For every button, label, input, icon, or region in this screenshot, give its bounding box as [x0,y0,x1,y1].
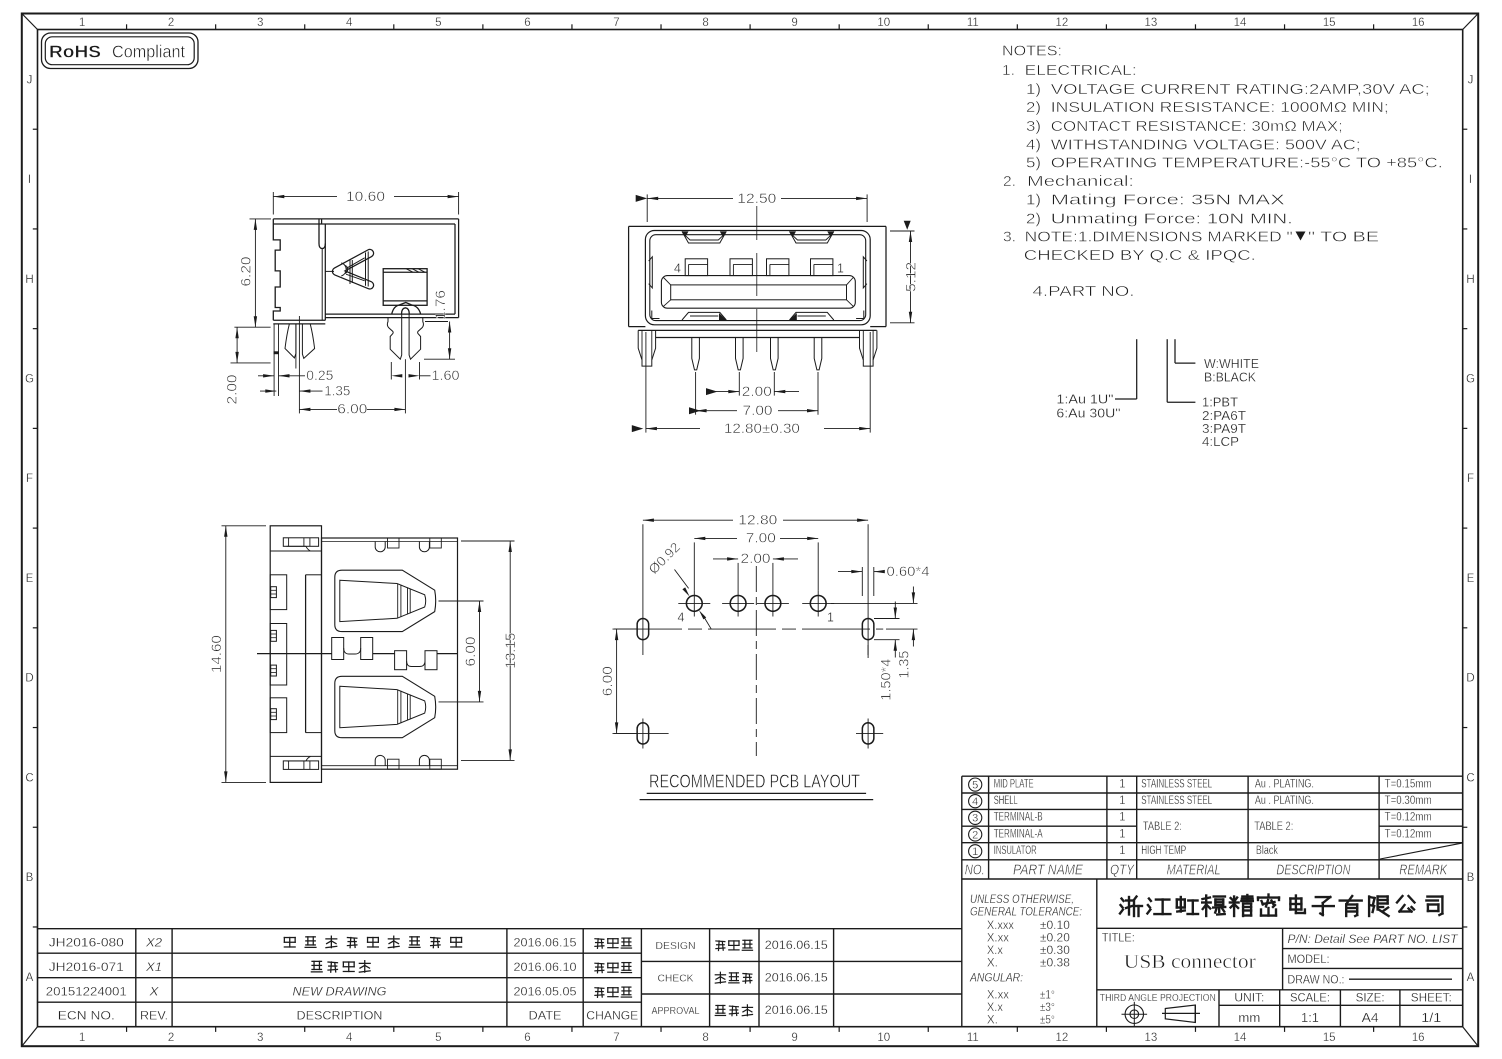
svg-text:12.50: 12.50 [737,191,776,206]
svg-text:5.12: 5.12 [903,262,918,292]
svg-text:DESCRIPTION: DESCRIPTION [297,1009,383,1023]
svg-text:2): 2) [1026,210,1041,227]
svg-text:1:Au 1U": 1:Au 1U" [1056,393,1113,407]
svg-text:WITHSTANDING VOLTAGE: 500V AC;: WITHSTANDING VOLTAGE: 500V AC; [1051,136,1361,153]
svg-text:X.: X. [987,1014,998,1026]
svg-text:2): 2) [1026,99,1041,116]
svg-text:10: 10 [877,17,890,29]
svg-text:C: C [25,772,33,784]
svg-text:5: 5 [972,780,978,792]
svg-text:10: 10 [877,1032,890,1044]
svg-text:T=0.12mm: T=0.12mm [1385,812,1432,824]
svg-text:14.60: 14.60 [209,635,224,673]
svg-text:11: 11 [967,1032,979,1044]
svg-text:1.76: 1.76 [433,290,448,320]
svg-text:15: 15 [1323,1032,1336,1044]
svg-text:13.15: 13.15 [503,633,518,669]
svg-text:STAINLESS STEEL: STAINLESS STEEL [1141,778,1212,790]
svg-text:Unmating Force: 10N MIN.: Unmating Force: 10N MIN. [1051,210,1293,227]
svg-text:2016.06.10: 2016.06.10 [514,960,577,974]
svg-text:J: J [27,74,33,86]
svg-text:1:PBT: 1:PBT [1202,396,1238,410]
svg-text:Mechanical:: Mechanical: [1027,173,1134,190]
svg-text:T=0.30mm: T=0.30mm [1385,795,1432,807]
svg-text:7: 7 [613,1032,619,1044]
svg-text:±1°: ±1° [1040,989,1055,1001]
svg-text:GENERAL TOLERANCE:: GENERAL TOLERANCE: [970,907,1082,919]
svg-text:11: 11 [967,17,979,29]
svg-text:9: 9 [791,17,797,29]
svg-text:CHANGE: CHANGE [586,1009,638,1023]
svg-text:A: A [1467,972,1475,984]
svg-text:1.60: 1.60 [432,368,460,383]
svg-text:H: H [1466,274,1474,286]
svg-text:4: 4 [346,17,353,29]
svg-text:DRAW NO.:: DRAW NO.: [1288,974,1345,986]
svg-text:P/N: Detail See PART NO. LIST: P/N: Detail See PART NO. LIST [1288,934,1459,946]
svg-text:12: 12 [1055,17,1068,29]
svg-text:MID PLATE: MID PLATE [994,778,1034,790]
svg-text:NEW DRAWING: NEW DRAWING [293,985,387,999]
svg-text:TITLE:: TITLE: [1102,931,1135,945]
svg-text:1.35: 1.35 [324,384,350,399]
svg-text:SHEET:: SHEET: [1411,991,1452,1005]
svg-text:12.80±0.30: 12.80±0.30 [724,421,800,436]
svg-text:3.: 3. [1003,229,1016,246]
svg-text:F: F [1467,473,1474,485]
svg-text:2: 2 [168,1032,174,1044]
svg-text:SHELL: SHELL [994,795,1018,807]
svg-text:NOTE:1.DIMENSIONS MARKED ": NOTE:1.DIMENSIONS MARKED " [1025,229,1293,246]
svg-text:2016.06.15: 2016.06.15 [765,938,828,952]
svg-text:4: 4 [674,262,681,276]
svg-text:B: B [1467,872,1475,884]
svg-text:6:Au 30U": 6:Au 30U" [1056,407,1120,421]
svg-text:15: 15 [1323,17,1336,29]
svg-text:1: 1 [79,17,85,29]
svg-text:7.00: 7.00 [746,531,776,546]
svg-text:2:PA6T: 2:PA6T [1202,409,1246,423]
svg-text:2016.06.15: 2016.06.15 [765,1003,828,1017]
svg-text:CHECK: CHECK [658,973,694,985]
svg-text:3: 3 [257,17,263,29]
svg-text:Compliant: Compliant [112,42,185,62]
svg-text:E: E [1467,573,1475,585]
svg-text:14: 14 [1234,17,1247,29]
svg-text:1: 1 [79,1032,85,1044]
svg-text:T=0.12mm: T=0.12mm [1385,828,1432,840]
svg-text:9: 9 [791,1032,797,1044]
svg-text:5: 5 [435,17,441,29]
svg-text:0.60*4: 0.60*4 [887,564,931,579]
svg-text:1:1: 1:1 [1301,1011,1319,1025]
svg-text:12.80: 12.80 [738,513,777,528]
svg-text:Black: Black [1256,845,1278,857]
svg-text:Mating Force: 35N MAX: Mating Force: 35N MAX [1051,192,1285,209]
svg-text:2016.05.05: 2016.05.05 [514,985,577,999]
svg-text:X.x: X.x [987,1002,1003,1014]
svg-text:RoHS: RoHS [49,42,101,62]
svg-text:±5°: ±5° [1040,1014,1055,1026]
svg-text:13: 13 [1145,1032,1158,1044]
svg-text:F: F [26,473,33,485]
svg-text:1/1: 1/1 [1421,1011,1441,1025]
svg-text:G: G [1466,374,1475,386]
svg-text:6: 6 [524,17,530,29]
svg-text:W:WHITE: W:WHITE [1204,357,1259,371]
svg-text:mm: mm [1238,1011,1260,1025]
svg-text:16: 16 [1412,17,1425,29]
svg-text:DATE: DATE [529,1009,562,1023]
svg-text:CONTACT RESISTANCE: 30mΩ MAX;: CONTACT RESISTANCE: 30mΩ MAX; [1051,118,1343,135]
svg-text:X.xx: X.xx [987,933,1009,945]
svg-text:0.25: 0.25 [306,368,333,383]
svg-text:HIGH TEMP: HIGH TEMP [1141,845,1186,857]
svg-text:TABLE 2:: TABLE 2: [1143,821,1182,833]
svg-text:6.20: 6.20 [239,257,254,287]
svg-text:A: A [26,972,34,984]
svg-text:3:PA9T: 3:PA9T [1202,422,1246,436]
svg-text:G: G [25,374,34,386]
svg-text:1.: 1. [1002,62,1015,79]
svg-text:4: 4 [678,611,685,625]
svg-text:A4: A4 [1362,1011,1379,1025]
svg-text:REV.: REV. [140,1009,168,1023]
svg-text:1.35: 1.35 [897,651,912,679]
svg-text:1: 1 [1119,795,1125,807]
svg-text:±0.30: ±0.30 [1040,945,1070,957]
svg-text:2.00: 2.00 [742,384,772,399]
svg-text:1): 1) [1026,81,1041,98]
svg-text:THIRD ANGLE PROJECTION: THIRD ANGLE PROJECTION [1100,992,1216,1004]
svg-text:16: 16 [1412,1032,1425,1044]
svg-text:X: X [148,985,159,999]
svg-text:Au . PLATING.: Au . PLATING. [1255,795,1314,807]
svg-text:D: D [25,673,33,685]
svg-text:1): 1) [1026,192,1041,209]
svg-text:RECOMMENDED PCB LAYOUT: RECOMMENDED PCB LAYOUT [649,771,860,791]
svg-text:±0.20: ±0.20 [1040,933,1070,945]
svg-text:MODEL:: MODEL: [1288,954,1330,966]
svg-text:STAINLESS STEEL: STAINLESS STEEL [1141,795,1212,807]
svg-text:8: 8 [702,1032,708,1044]
svg-text:1: 1 [1119,845,1125,857]
svg-text:QTY: QTY [1110,863,1135,879]
svg-text:UNIT:: UNIT: [1234,991,1264,1005]
svg-text:7: 7 [613,17,619,29]
svg-text:3: 3 [257,1032,263,1044]
svg-text:NO.: NO. [965,863,985,879]
svg-text:5: 5 [435,1032,441,1044]
svg-text:2.00: 2.00 [225,375,240,405]
svg-text:4: 4 [972,796,978,808]
svg-text:2.00: 2.00 [741,551,771,566]
svg-text:T=0.15mm: T=0.15mm [1385,778,1432,790]
svg-text:4: 4 [346,1032,353,1044]
svg-text:8: 8 [702,17,708,29]
svg-text:SCALE:: SCALE: [1290,991,1330,1005]
svg-text:X.xxx: X.xxx [987,920,1014,932]
svg-text:X.xx: X.xx [987,989,1009,1001]
svg-text:2: 2 [168,17,174,29]
svg-text:E: E [26,573,34,585]
svg-text:6.00: 6.00 [463,637,478,667]
svg-text:14: 14 [1234,1032,1247,1044]
svg-text:3): 3) [1026,118,1041,135]
svg-text:Au . PLATING.: Au . PLATING. [1255,778,1314,790]
svg-text:ELECTRICAL:: ELECTRICAL: [1025,62,1137,79]
svg-text:SIZE:: SIZE: [1356,991,1385,1005]
svg-text:USB connector: USB connector [1124,952,1257,973]
svg-text:I: I [1469,174,1472,186]
svg-text:TABLE 2:: TABLE 2: [1254,821,1293,833]
svg-text:ECN NO.: ECN NO. [58,1009,115,1023]
svg-text:1: 1 [837,262,844,276]
svg-text:1: 1 [827,611,834,625]
svg-text:1: 1 [1119,778,1125,790]
svg-text:20151224001: 20151224001 [46,985,127,999]
svg-text:VOLTAGE CURRENT RATING:2AMP,30: VOLTAGE CURRENT RATING:2AMP,30V AC; [1051,81,1430,98]
svg-text:±0.38: ±0.38 [1040,957,1070,969]
svg-text:10.60: 10.60 [346,189,385,204]
svg-text:TERMINAL-A: TERMINAL-A [994,828,1043,840]
svg-text:DESIGN: DESIGN [656,940,696,952]
svg-text:OPERATING TEMPERATURE:-55°C TO: OPERATING TEMPERATURE:-55°C TO +85°C. [1051,155,1443,172]
svg-text:C: C [1466,772,1474,784]
svg-text:2016.06.15: 2016.06.15 [514,936,577,950]
svg-text:X.x: X.x [987,945,1003,957]
svg-text:X1: X1 [145,960,162,974]
svg-text:ANGULAR:: ANGULAR: [969,972,1023,984]
svg-text:4:LCP: 4:LCP [1202,435,1239,449]
svg-text:±3°: ±3° [1040,1002,1055,1014]
svg-text:JH2016-071: JH2016-071 [49,960,124,974]
svg-text:1.50*4: 1.50*4 [879,658,894,701]
svg-text:I: I [28,174,31,186]
svg-text:3: 3 [972,813,978,825]
svg-text:6.00: 6.00 [337,402,367,417]
svg-text:J: J [1468,74,1474,86]
svg-text:DESCRIPTION: DESCRIPTION [1276,863,1350,879]
svg-text:±0.10: ±0.10 [1040,920,1070,932]
svg-text:1: 1 [972,846,978,858]
svg-text:1: 1 [1119,812,1125,824]
svg-text:B:BLACK: B:BLACK [1204,371,1257,385]
svg-text:CHECKED BY Q.C & IPQC.: CHECKED BY Q.C & IPQC. [1024,247,1256,264]
svg-text:2: 2 [972,829,978,841]
svg-text:" TO BE: " TO BE [1308,229,1379,246]
svg-text:1: 1 [1119,828,1125,840]
svg-text:2016.06.15: 2016.06.15 [765,971,828,985]
svg-text:H: H [25,274,33,286]
svg-text:5): 5) [1026,155,1041,172]
svg-text:APPROVAL: APPROVAL [652,1005,700,1017]
svg-text:X.: X. [987,957,998,969]
svg-text:TERMINAL-B: TERMINAL-B [994,812,1043,824]
svg-text:4.PART NO.: 4.PART NO. [1033,283,1135,300]
svg-text:12: 12 [1055,1032,1068,1044]
svg-text:7.00: 7.00 [743,403,773,418]
svg-text:6.00: 6.00 [600,666,615,696]
svg-text:INSULATION RESISTANCE: 1000MΩ: INSULATION RESISTANCE: 1000MΩ MIN; [1051,99,1389,116]
svg-text:4): 4) [1026,136,1041,153]
svg-text:D: D [1466,673,1474,685]
svg-text:2.: 2. [1003,173,1016,190]
svg-text:MATERIAL: MATERIAL [1167,863,1221,879]
svg-text:INSULATOR: INSULATOR [994,845,1037,857]
svg-text:NOTES:: NOTES: [1002,43,1062,60]
svg-text:JH2016-080: JH2016-080 [49,936,124,950]
svg-text:REMARK: REMARK [1399,863,1448,879]
svg-text:X2: X2 [145,936,162,950]
svg-text:PART NAME: PART NAME [1013,863,1083,879]
svg-text:UNLESS OTHERWISE,: UNLESS OTHERWISE, [970,894,1074,906]
svg-text:6: 6 [524,1032,530,1044]
svg-text:B: B [26,872,34,884]
svg-text:13: 13 [1145,17,1158,29]
